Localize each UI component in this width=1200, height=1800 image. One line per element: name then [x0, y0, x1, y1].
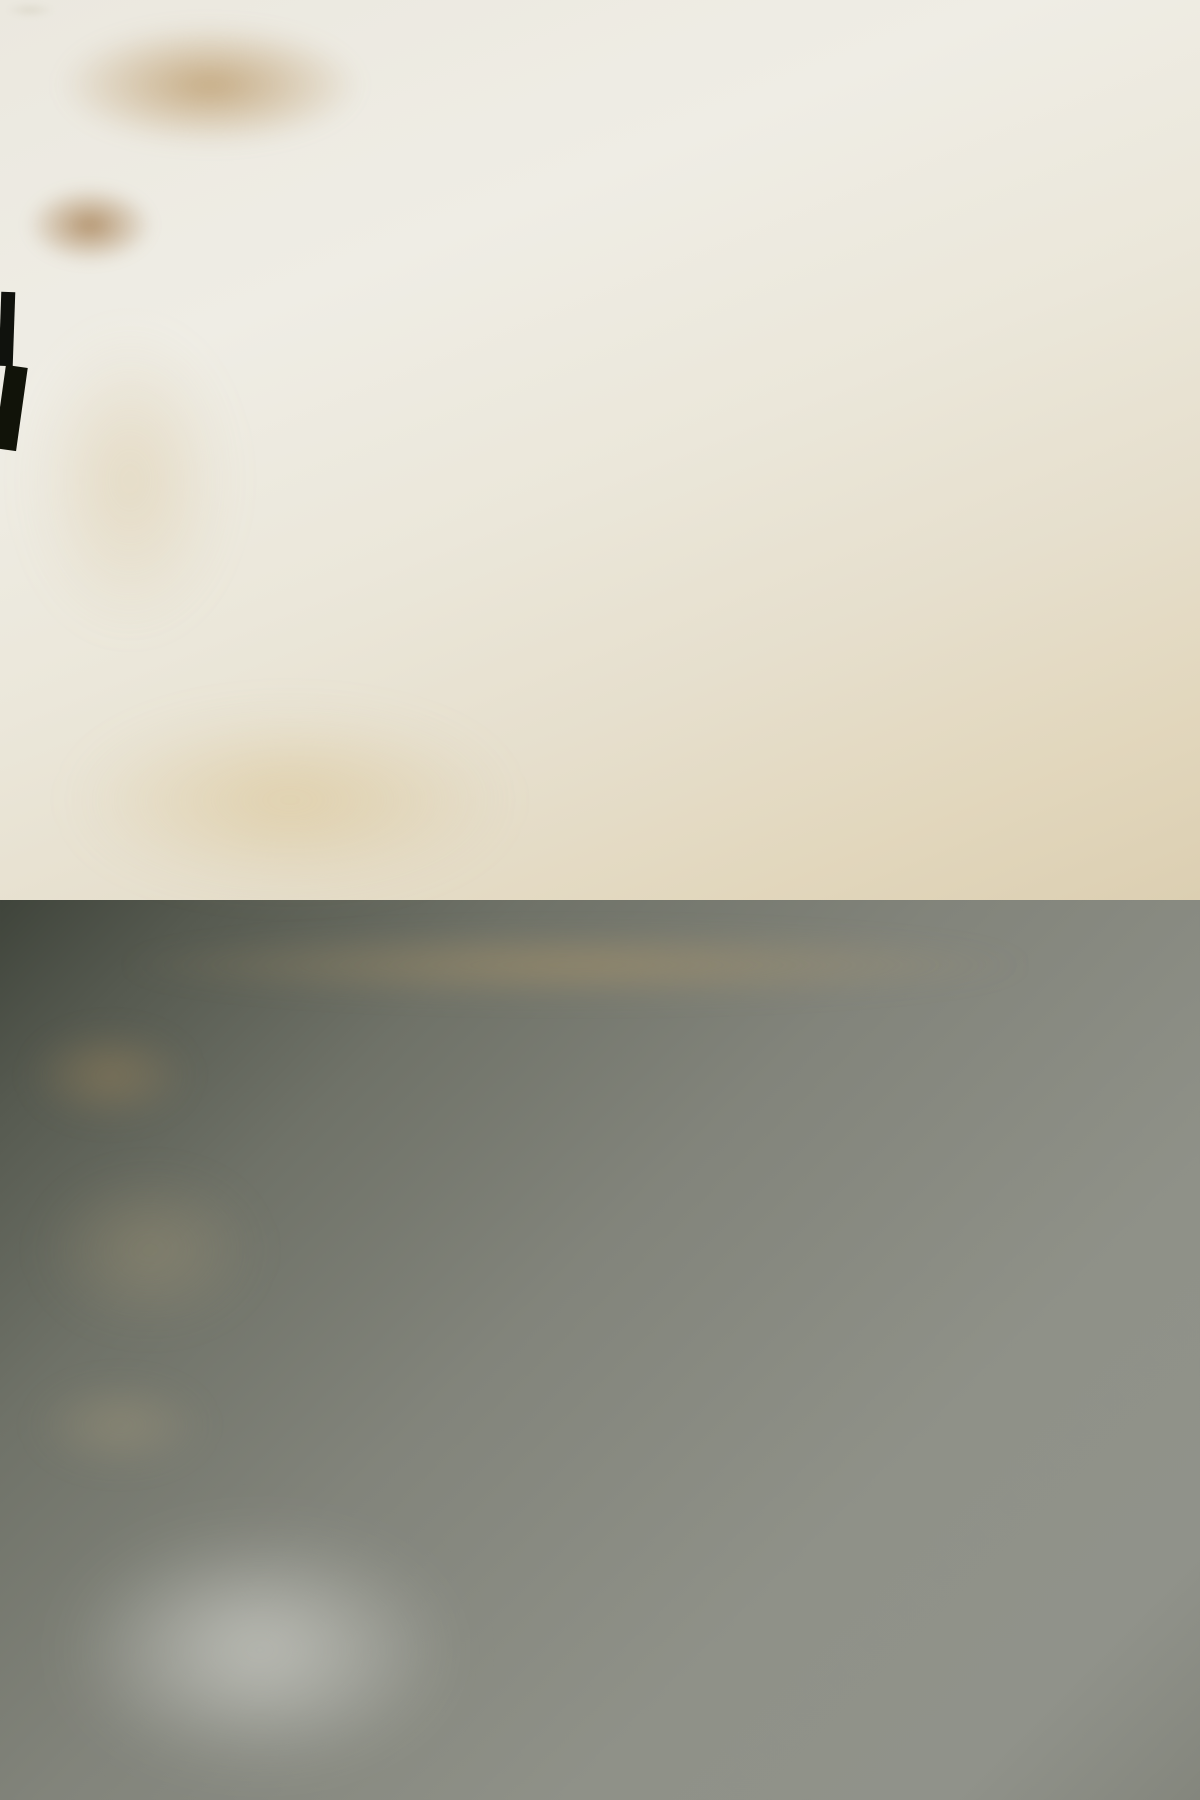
- stain-mid-diagonal: [0, 1140, 300, 1360]
- stain-bottom-center: [0, 680, 580, 920]
- paper-scrap: [0, 0, 60, 20]
- stain-top-right-tear: [0, 0, 420, 170]
- drawing-sheet: — U/SIDE VIEW — — LOWER WING — — SCALE 1…: [0, 0, 1200, 900]
- stain-bottom-left: [0, 1010, 220, 1140]
- stain-top-center: [0, 1360, 240, 1490]
- mounting-clip-bottom-left: [0, 292, 15, 366]
- stain-bottom-band: [0, 920, 1150, 1010]
- photo-of-drawing: — U/SIDE VIEW — — LOWER WING — — SCALE 1…: [0, 0, 1200, 900]
- stain-top-right-dark: [0, 170, 180, 280]
- stain-right-middle: [0, 280, 260, 680]
- sheen-upper: [0, 1490, 520, 1800]
